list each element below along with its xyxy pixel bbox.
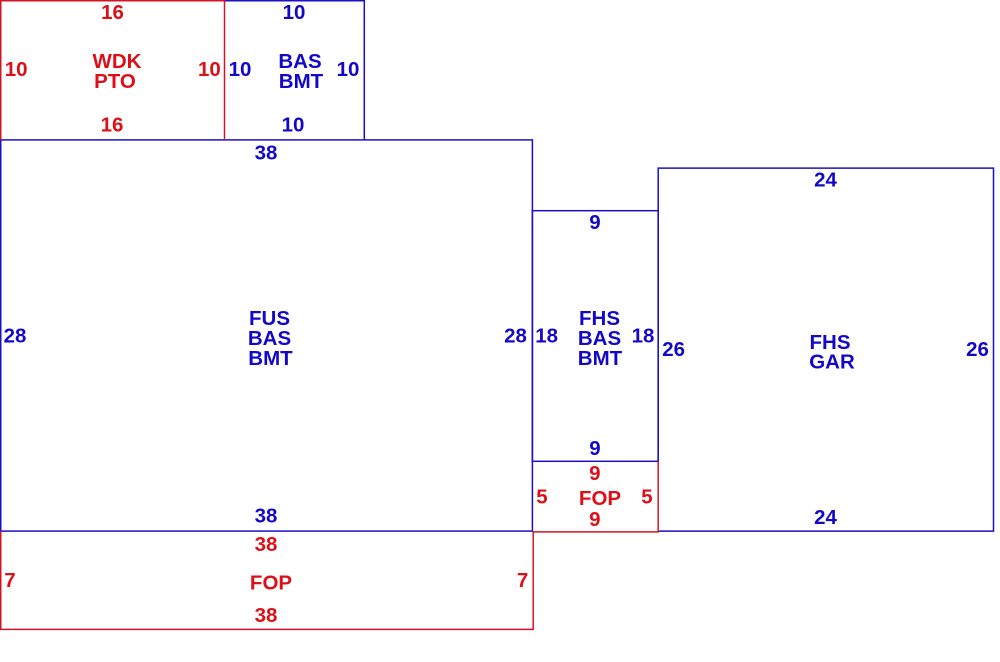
svg-text:28: 28 [504, 325, 527, 348]
svg-text:26: 26 [662, 338, 685, 361]
svg-text:38: 38 [255, 533, 278, 556]
svg-text:10: 10 [282, 114, 305, 137]
svg-text:28: 28 [4, 325, 27, 348]
svg-text:BMT: BMT [279, 70, 324, 93]
svg-text:7: 7 [517, 569, 528, 592]
svg-text:16: 16 [101, 114, 124, 137]
svg-text:24: 24 [814, 169, 837, 192]
svg-text:FOP: FOP [250, 572, 292, 595]
svg-text:16: 16 [101, 1, 124, 24]
svg-text:10: 10 [5, 58, 28, 81]
svg-text:9: 9 [589, 211, 600, 234]
svg-text:26: 26 [966, 338, 989, 361]
svg-text:7: 7 [4, 569, 15, 592]
svg-text:9: 9 [589, 462, 600, 485]
svg-text:24: 24 [814, 506, 837, 529]
svg-text:38: 38 [255, 505, 278, 528]
svg-text:9: 9 [589, 437, 600, 460]
svg-text:PTO: PTO [94, 70, 136, 93]
svg-text:9: 9 [589, 508, 600, 531]
svg-text:38: 38 [255, 142, 278, 165]
svg-text:BMT: BMT [578, 347, 623, 370]
svg-text:FOP: FOP [579, 487, 621, 510]
svg-text:38: 38 [255, 604, 278, 627]
svg-text:18: 18 [535, 325, 558, 348]
svg-text:5: 5 [536, 486, 547, 509]
svg-text:10: 10 [198, 58, 221, 81]
svg-text:BMT: BMT [248, 347, 293, 370]
svg-text:10: 10 [337, 58, 360, 81]
svg-text:GAR: GAR [809, 351, 855, 374]
svg-text:18: 18 [632, 325, 655, 348]
svg-text:10: 10 [229, 58, 252, 81]
svg-text:10: 10 [283, 1, 306, 24]
svg-text:5: 5 [641, 486, 652, 509]
